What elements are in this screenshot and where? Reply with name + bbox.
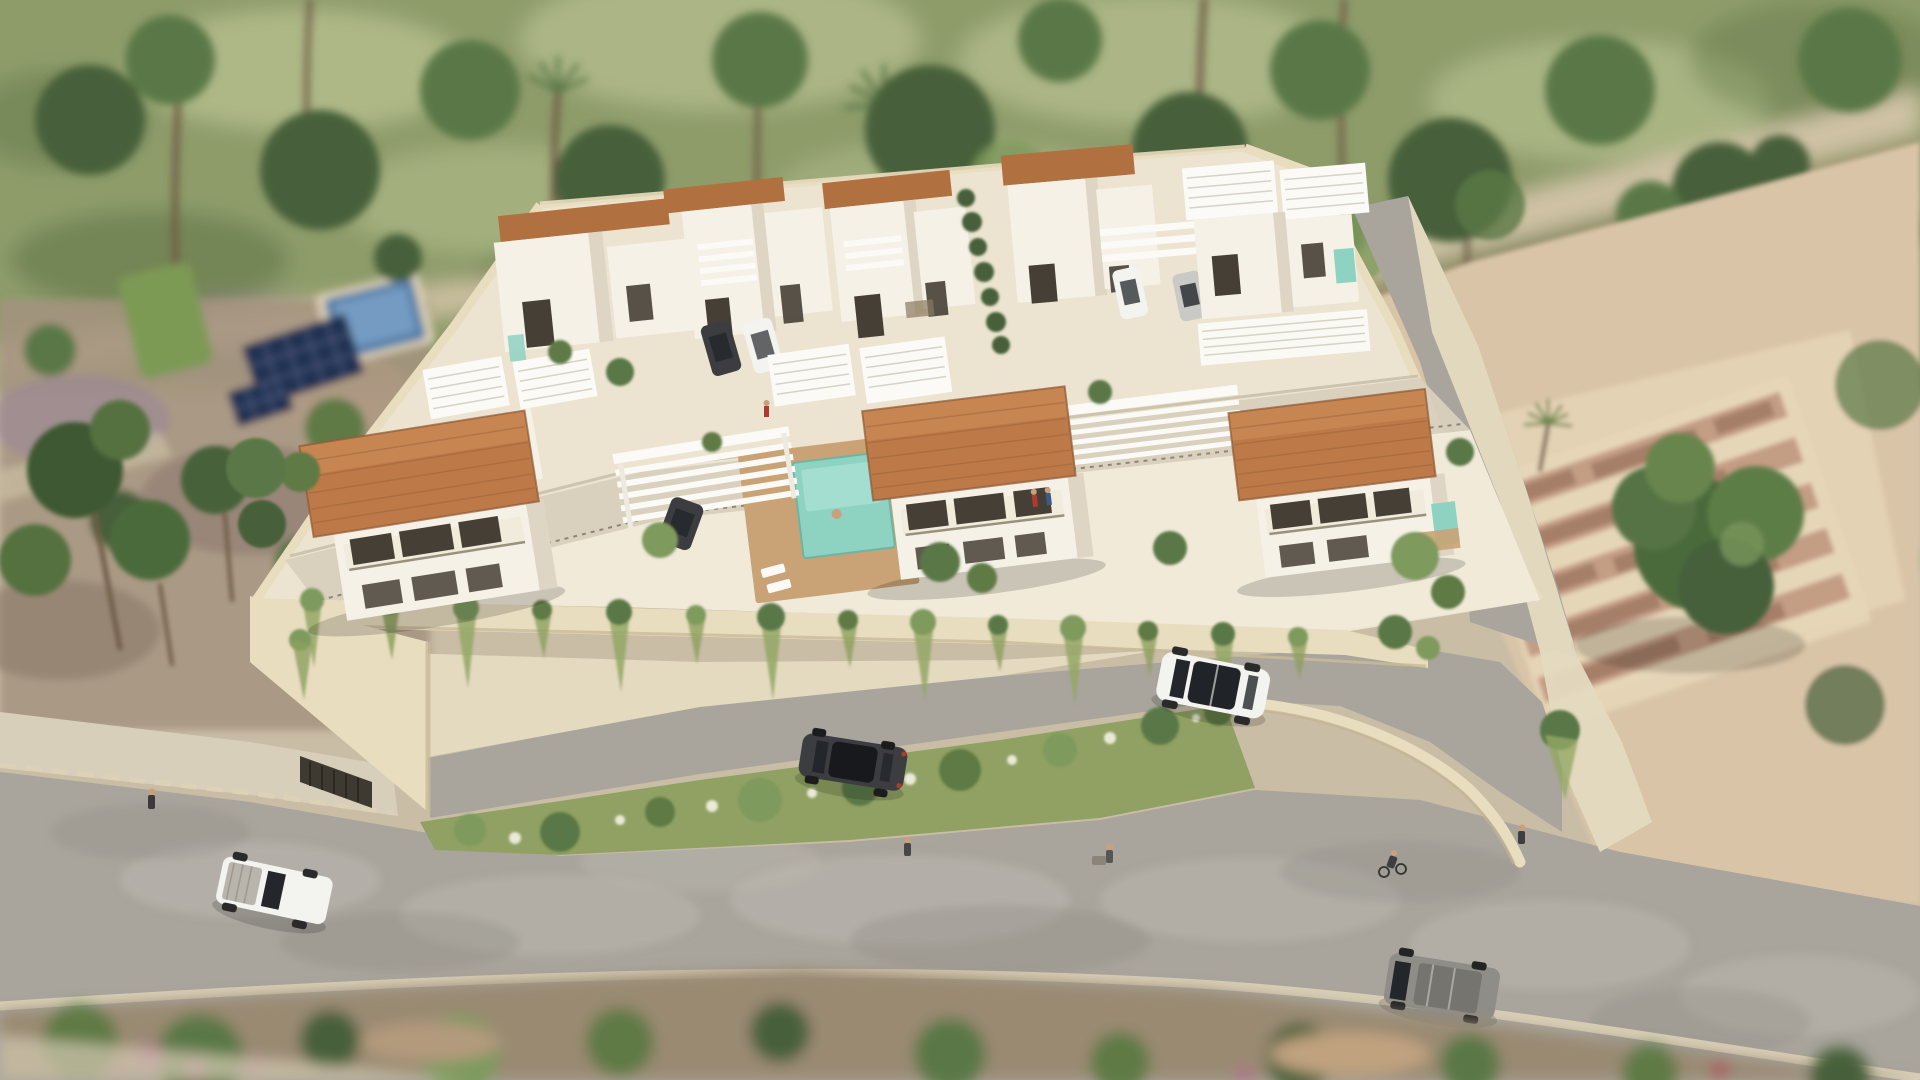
- pedestrian-center: [904, 837, 912, 857]
- private-pool-a: [508, 334, 527, 362]
- aerial-render-canvas: Aerial daytime 3D rendering of a gated r…: [0, 0, 1920, 1080]
- pedestrian-right: [1518, 825, 1526, 845]
- terrace-table: [905, 299, 935, 318]
- pedestrian-left: [148, 789, 156, 810]
- render-viewport: Aerial daytime 3D rendering of a gated r…: [0, 0, 1920, 1080]
- back-villa-e: [1182, 153, 1382, 366]
- walker-in-compound: [764, 406, 769, 417]
- private-pool-e: [1334, 248, 1357, 284]
